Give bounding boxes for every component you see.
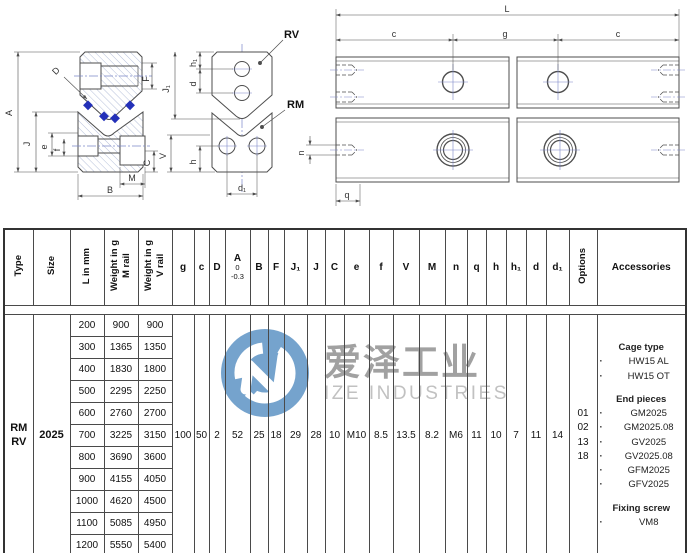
weight-m-value: 2295 — [104, 381, 138, 403]
size-value: 2025 — [33, 315, 70, 553]
dim-value-M: 8.2 — [419, 315, 445, 553]
dim-label-c-left: c — [392, 29, 397, 39]
col-header-C: C — [325, 229, 344, 306]
weight-m-value: 3690 — [104, 447, 138, 469]
weight-m-value: 2760 — [104, 403, 138, 425]
length-value: 600 — [70, 403, 104, 425]
length-value: 1200 — [70, 535, 104, 553]
dim-value-C: 10 — [325, 315, 344, 553]
dim-value-f: 8.5 — [369, 315, 393, 553]
technical-drawings: A J e f D F C M B — [0, 0, 688, 226]
dim-label-g: g — [502, 29, 507, 39]
col-header-J1: J₁ — [284, 229, 307, 306]
accessory-item: GFV2025 — [598, 478, 686, 492]
end-view-drawing: RV RM J₁ V h₁ d h d₁ — [158, 29, 304, 197]
dim-label-q: q — [344, 190, 349, 200]
col-header-size: Size — [33, 229, 70, 306]
col-header-J: J — [307, 229, 325, 306]
dim-value-J: 28 — [307, 315, 325, 553]
dim-value-e: M10 — [344, 315, 369, 553]
col-header-h: h — [486, 229, 506, 306]
col-header-accessories: Accessories — [597, 229, 686, 306]
col-header-F: F — [268, 229, 284, 306]
accessories-cage-title: Cage type — [598, 341, 686, 355]
col-header-c: c — [194, 229, 209, 306]
weight-m-value: 1365 — [104, 337, 138, 359]
specification-table: Type Size L in mm Weight in g M rail Wei… — [3, 228, 687, 553]
dim-value-B: 25 — [250, 315, 268, 553]
dim-label-n: n — [296, 150, 306, 155]
col-header-weight-v: Weight in g V rail — [138, 229, 172, 306]
options-values: 01 02 13 18 — [569, 315, 597, 553]
callout-rm: RM — [287, 99, 304, 111]
weight-v-value: 5400 — [138, 535, 172, 553]
length-value: 200 — [70, 315, 104, 337]
weight-v-value: 4050 — [138, 469, 172, 491]
col-header-D: D — [209, 229, 225, 306]
col-header-type: Type — [4, 229, 33, 306]
callout-rv: RV — [284, 29, 300, 41]
dim-label-L: L — [504, 4, 509, 14]
accessories-endpieces-title: End pieces — [598, 393, 686, 407]
accessory-item: HW15 AL — [598, 355, 686, 369]
col-header-d1: d₁ — [546, 229, 569, 306]
dim-label-D: D — [50, 65, 62, 77]
weight-m-value: 5085 — [104, 513, 138, 535]
weight-m-value: 4620 — [104, 491, 138, 513]
length-value: 700 — [70, 425, 104, 447]
dim-label-A: A — [4, 110, 14, 116]
dim-value-J1: 29 — [284, 315, 307, 553]
weight-v-value: 3600 — [138, 447, 172, 469]
dim-value-V: 13.5 — [393, 315, 419, 553]
accessory-item: GV2025 — [598, 436, 686, 450]
tolerance-lower: -0.3 — [226, 273, 250, 282]
length-value: 500 — [70, 381, 104, 403]
dim-value-A: 52 — [225, 315, 250, 553]
col-header-weight-m: Weight in g M rail — [104, 229, 138, 306]
col-header-e: e — [344, 229, 369, 306]
dim-label-M: M — [128, 173, 136, 183]
dim-label-f: f — [52, 148, 62, 151]
weight-v-value: 2250 — [138, 381, 172, 403]
weight-v-value: 4950 — [138, 513, 172, 535]
dim-value-F: 18 — [268, 315, 284, 553]
col-header-length: L in mm — [70, 229, 104, 306]
table-row: RM RV 2025 200 900 900 100 50 2 52 25 18… — [4, 315, 686, 337]
header-row: Type Size L in mm Weight in g M rail Wei… — [4, 229, 686, 306]
dim-value-g: 100 — [172, 315, 194, 553]
dim-label-h: h — [188, 159, 198, 164]
accessories-cell: Cage type HW15 AL HW15 OT End pieces GM2… — [597, 315, 686, 553]
dim-label-J: J — [22, 142, 32, 147]
dim-value-d1: 14 — [546, 315, 569, 553]
col-header-f: f — [369, 229, 393, 306]
weight-v-value: 1350 — [138, 337, 172, 359]
dim-label-h1: h₁ — [188, 59, 198, 67]
accessory-item: GFM2025 — [598, 464, 686, 478]
dim-label-V: V — [158, 153, 168, 159]
length-value: 400 — [70, 359, 104, 381]
col-header-g: g — [172, 229, 194, 306]
length-value: 300 — [70, 337, 104, 359]
length-value: 800 — [70, 447, 104, 469]
accessories-fixing-title: Fixing screw — [598, 502, 686, 516]
col-header-B: B — [250, 229, 268, 306]
col-header-A: A 0 -0.3 — [225, 229, 250, 306]
cross-section-drawing: A J e f D F C M B — [4, 52, 158, 200]
col-header-n: n — [445, 229, 467, 306]
dim-label-J1: J₁ — [161, 85, 171, 93]
dim-value-d: 11 — [526, 315, 546, 553]
weight-m-value: 4155 — [104, 469, 138, 491]
header-separator-bar — [4, 306, 686, 315]
type-value: RM RV — [4, 315, 33, 553]
weight-v-value: 1800 — [138, 359, 172, 381]
dim-label-B: B — [107, 185, 113, 195]
length-value: 1100 — [70, 513, 104, 535]
weight-m-value: 5550 — [104, 535, 138, 553]
dim-value-n: M6 — [445, 315, 467, 553]
col-header-d: d — [526, 229, 546, 306]
length-value: 1000 — [70, 491, 104, 513]
col-header-M: M — [419, 229, 445, 306]
col-header-V: V — [393, 229, 419, 306]
dim-value-h: 10 — [486, 315, 506, 553]
dim-label-d1: d₁ — [238, 183, 246, 193]
accessory-item: GM2025.08 — [598, 421, 686, 435]
dim-value-c: 50 — [194, 315, 209, 553]
dim-label-F: F — [141, 76, 151, 82]
weight-v-value: 900 — [138, 315, 172, 337]
accessory-item: VM8 — [598, 516, 686, 530]
dim-label-d: d — [188, 81, 198, 86]
dim-label-C: C — [142, 159, 152, 166]
accessory-item: GV2025.08 — [598, 450, 686, 464]
weight-v-value: 4500 — [138, 491, 172, 513]
col-header-q: q — [467, 229, 486, 306]
length-value: 900 — [70, 469, 104, 491]
datasheet-page: A J e f D F C M B — [0, 0, 688, 553]
dim-label-c-right: c — [616, 29, 621, 39]
accessory-item: GM2025 — [598, 407, 686, 421]
col-header-options: Options — [569, 229, 597, 306]
weight-m-value: 3225 — [104, 425, 138, 447]
accessory-item: HW15 OT — [598, 370, 686, 384]
dim-value-h1: 7 — [506, 315, 526, 553]
dim-label-e: e — [39, 144, 49, 149]
weight-v-value: 2700 — [138, 403, 172, 425]
weight-v-value: 3150 — [138, 425, 172, 447]
weight-m-value: 900 — [104, 315, 138, 337]
rail-top-view-drawing: L c g c n q — [296, 4, 685, 206]
weight-m-value: 1830 — [104, 359, 138, 381]
dim-value-q: 11 — [467, 315, 486, 553]
col-header-h1: h₁ — [506, 229, 526, 306]
dim-value-D: 2 — [209, 315, 225, 553]
